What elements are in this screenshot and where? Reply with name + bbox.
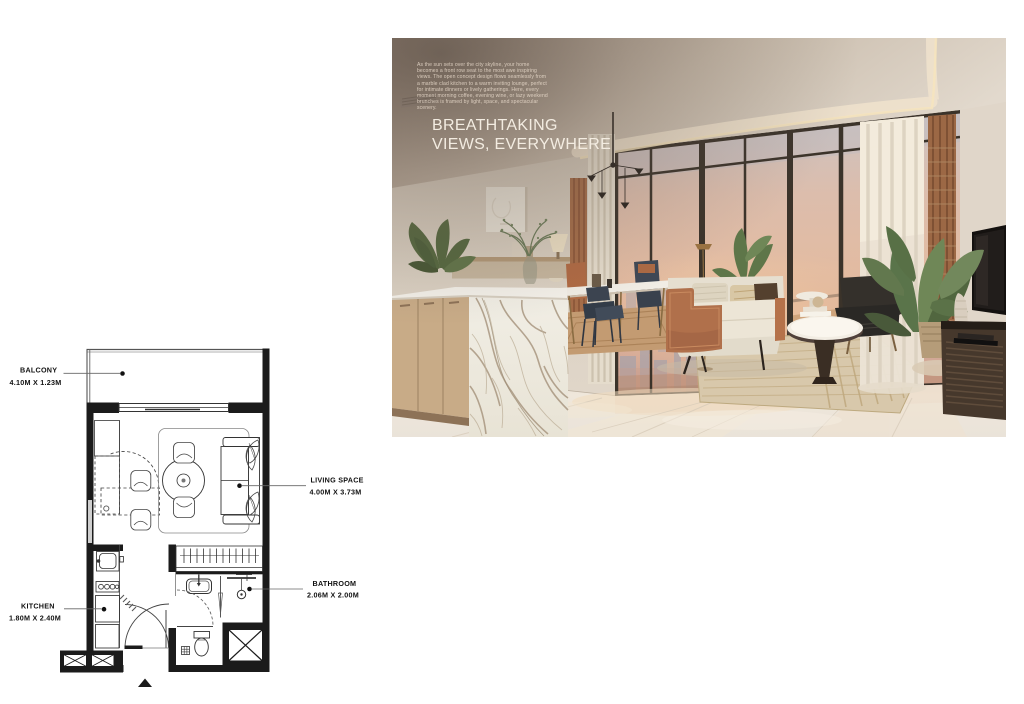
svg-text:4.10M X 1.23M: 4.10M X 1.23M: [10, 378, 62, 387]
svg-text:2.06M X 2.00M: 2.06M X 2.00M: [307, 591, 359, 600]
svg-text:KITCHEN: KITCHEN: [21, 602, 55, 611]
svg-text:BALCONY: BALCONY: [20, 366, 57, 375]
svg-text:1.80M X 2.40M: 1.80M X 2.40M: [9, 614, 61, 623]
svg-text:4.00M X 3.73M: 4.00M X 3.73M: [310, 488, 362, 497]
svg-text:LIVING SPACE: LIVING SPACE: [311, 476, 364, 485]
svg-text:BATHROOM: BATHROOM: [313, 579, 357, 588]
